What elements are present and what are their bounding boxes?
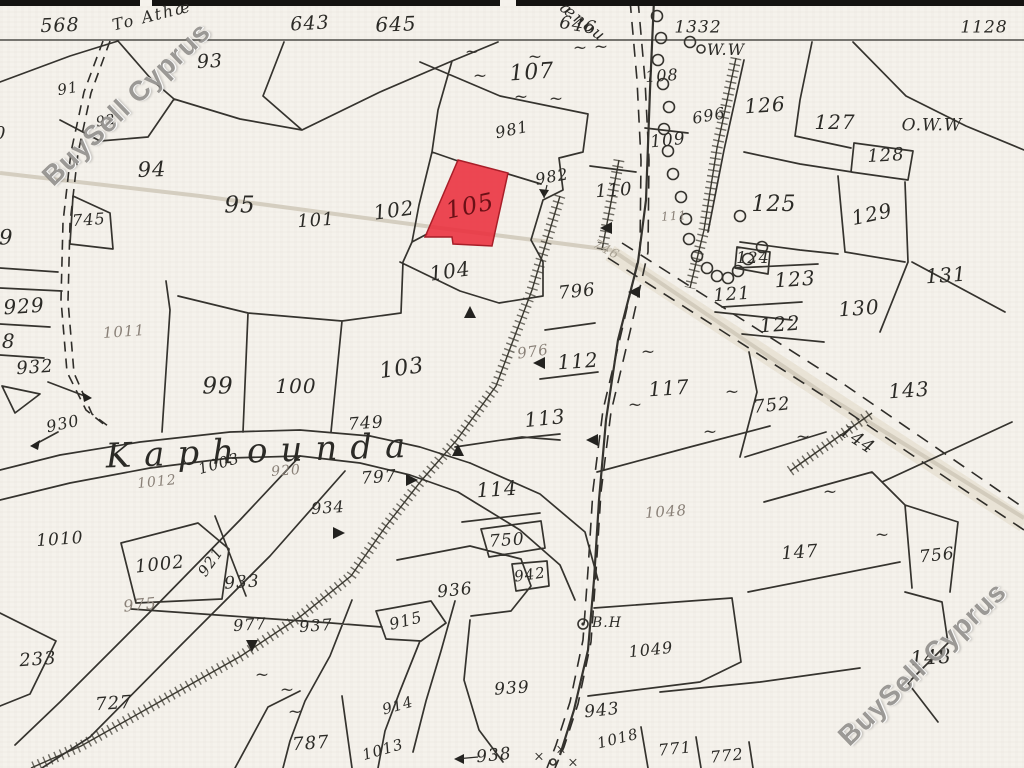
parcel-label-936: 936 (436, 581, 473, 602)
parcel-label-1002: 1002 (134, 553, 185, 576)
parcel-label-1048: 1048 (644, 503, 687, 521)
parcel-label-113: 113 (523, 406, 566, 430)
survey-cross-mark: × (556, 743, 567, 758)
marsh-tilde-mark: ~ (594, 37, 608, 57)
parcel-label-126: 126 (744, 94, 786, 117)
parcel-label-1012: 1012 (137, 473, 178, 491)
parcel-label-934: 934 (311, 499, 346, 517)
scan-edge-gap (500, 0, 516, 6)
parcel-label-645: 645 (375, 13, 417, 34)
marsh-tilde-mark: ~ (255, 665, 269, 685)
parcel-label-643: 643 (290, 13, 330, 34)
parcel-label-943: 943 (583, 701, 620, 722)
parcel-label-939: 939 (494, 679, 531, 698)
tree-circle-symbol (735, 211, 746, 222)
parcel-label-976: 976 (516, 342, 549, 361)
parcel-label-771: 771 (657, 739, 692, 758)
marsh-tilde-mark: ~ (280, 680, 294, 700)
parcel-label-91: 91 (56, 80, 79, 98)
tree-circle-symbol (668, 169, 679, 180)
marsh-tilde-mark: ~ (725, 382, 739, 402)
parcel-label-128: 128 (867, 146, 905, 166)
parcel-label-143: 143 (888, 379, 930, 402)
parcel-label-94: 94 (137, 159, 166, 181)
parcel-label-928: 928 (0, 331, 16, 351)
parcel-label-568: 568 (40, 16, 80, 36)
parcel-label-745: 745 (72, 211, 107, 229)
marsh-tilde-mark: ~ (703, 422, 717, 442)
parcel-label-932: 932 (16, 358, 55, 379)
parcel-label-787: 787 (292, 734, 331, 755)
parcel-label-772: 772 (709, 746, 744, 765)
parcel-label-124: 124 (736, 250, 770, 266)
tree-circle-symbol (676, 192, 687, 203)
parcel-label-1128: 1128 (960, 20, 1007, 37)
place-name-label: Kaphounda (105, 429, 419, 474)
marsh-tilde-mark: ~ (796, 427, 810, 447)
marsh-tilde-mark: ~ (549, 89, 563, 109)
marsh-tilde-mark: ~ (528, 47, 542, 67)
tree-circle-symbol (702, 263, 713, 274)
parcel-label-929: 929 (3, 295, 45, 318)
parcel-label-942: 942 (513, 565, 546, 584)
roads (0, 0, 1024, 768)
parcel-label-110: 110 (595, 181, 634, 202)
tree-circle-symbol (664, 102, 675, 113)
parcel-label-1011: 1011 (102, 323, 145, 341)
parcel-label-1049: 1049 (628, 640, 674, 661)
parcel-label-O-W-W: O.W.W (902, 118, 963, 135)
parcel-label-104: 104 (428, 258, 472, 284)
parcel-label-93: 93 (196, 52, 223, 72)
parcel-label-90: 90 (0, 125, 6, 143)
marsh-tilde-mark: ~ (823, 482, 837, 502)
parcel-label-752: 752 (752, 395, 791, 417)
parcel-label-109: 109 (649, 131, 686, 152)
parcel-label-933: 933 (224, 573, 261, 592)
marsh-tilde-mark: ~ (875, 525, 889, 545)
parcel-label-W-W: W.W (707, 42, 745, 58)
parcel-label-727: 727 (95, 694, 134, 715)
marsh-tilde-mark: ~ (641, 342, 655, 362)
marsh-tilde-mark: ~ (628, 395, 642, 415)
parcel-label-117: 117 (648, 377, 690, 400)
parcel-label-796: 796 (557, 281, 596, 303)
tree-circle-symbol (684, 234, 695, 245)
parcel-label-233: 233 (19, 650, 58, 671)
parcel-label-125: 125 (752, 194, 797, 216)
parcel-label-100: 100 (275, 376, 316, 396)
parcel-label-95: 95 (224, 195, 255, 218)
parcel-label-111: 111 (661, 209, 688, 223)
marsh-tilde-mark: ~ (288, 702, 302, 722)
parcel-label-131: 131 (925, 264, 967, 287)
survey-cross-mark: × (534, 750, 545, 765)
parcel-label-147: 147 (781, 543, 820, 564)
parcel-label-756: 756 (918, 546, 955, 567)
marsh-tilde-mark: ~ (573, 38, 587, 58)
survey-cross-mark: × (568, 756, 579, 768)
parcel-label-1332: 1332 (674, 20, 721, 37)
marsh-tilde-mark: ~ (473, 66, 487, 86)
parcel-label-114: 114 (476, 478, 518, 501)
parcel-label-937: 937 (299, 617, 334, 635)
tree-circle-symbol (656, 33, 667, 44)
parcel-label-121: 121 (713, 285, 752, 306)
map-linework (0, 0, 1024, 768)
parcel-label-977: 977 (233, 616, 268, 634)
parcel-label-797: 797 (361, 468, 398, 487)
parcel-label-1010: 1010 (36, 530, 84, 550)
parcel-label-130: 130 (838, 297, 880, 320)
parcel-label-99: 99 (202, 376, 233, 399)
parcel-label-789: 789 (0, 228, 14, 249)
parcel-label-112: 112 (557, 350, 599, 373)
marsh-tilde-mark: ~ (465, 42, 479, 62)
parcel-label-122: 122 (759, 313, 801, 336)
parcel-label-750: 750 (489, 531, 526, 550)
tree-circle-symbol (712, 271, 723, 282)
parcel-label-127: 127 (814, 112, 855, 132)
parcel-label-101: 101 (297, 211, 336, 232)
parcel-label-123: 123 (774, 268, 816, 291)
marsh-tilde-mark: ~ (514, 87, 528, 107)
tree-circle-symbol (653, 55, 664, 66)
parcel-label-B-H: B.H (592, 616, 622, 630)
parcel-label-108: 108 (645, 67, 680, 85)
parcel-label-102: 102 (372, 197, 416, 223)
cadastral-map-scan: 568To Athæænou64364564613321128W.WO.W.W9… (0, 0, 1024, 768)
parcel-label-938: 938 (475, 746, 512, 767)
parcel-label-975: 975 (122, 595, 157, 614)
tree-circle-symbol (685, 37, 696, 48)
tree-circle-symbol (723, 273, 734, 284)
